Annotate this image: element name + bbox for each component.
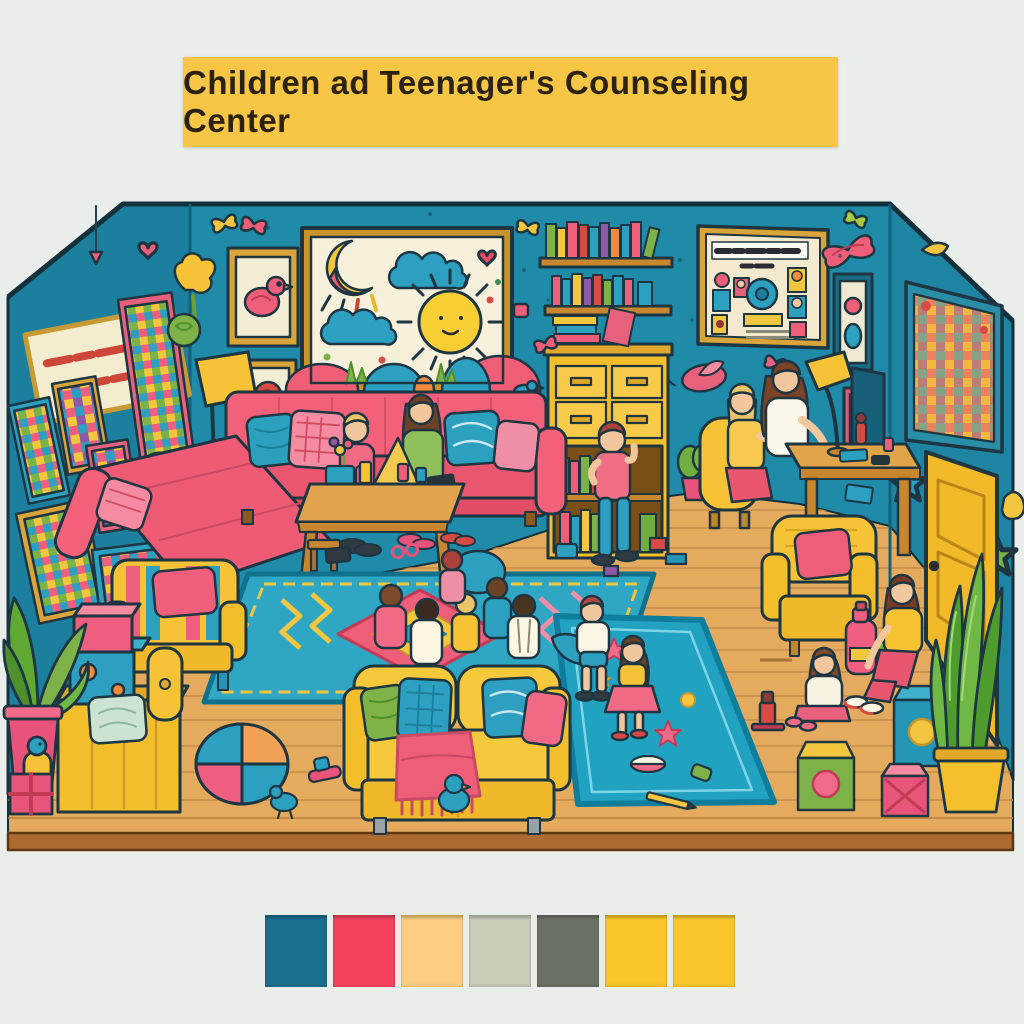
color-palette-strip [265,915,735,987]
illustration-canvas: Children ad Teenager's Counseling Center [0,0,1024,1024]
yellow-green-block [798,742,854,810]
teal-toy [556,544,577,558]
kid-6 [440,550,465,603]
palette-swatch-4 [469,915,531,987]
kid-5 [508,595,539,658]
kid-2 [411,599,442,664]
dark-toy [325,547,350,563]
palette-swatch-5 [537,915,599,987]
red-block-toy [650,538,666,550]
kid-1 [375,585,406,648]
wall-bookshelf [540,222,672,315]
floor-edge-strip [8,833,1013,850]
palette-swatch-7 [673,915,735,987]
room-illustration [0,0,1024,1024]
small-blocks [604,566,618,576]
teal-block-toy [666,554,686,564]
palette-swatch-2 [333,915,395,987]
bulletin-board [698,226,828,348]
puzzle-decal [514,304,528,317]
right-wall-poster [906,282,1002,452]
palette-swatch-6 [605,915,667,987]
yellow-figure-decal [1002,492,1024,519]
bird-picture-frame [228,248,298,346]
palette-swatch-1 [265,915,327,987]
pink-block [882,764,928,816]
palette-swatch-3 [401,915,463,987]
gift-block [10,774,52,814]
